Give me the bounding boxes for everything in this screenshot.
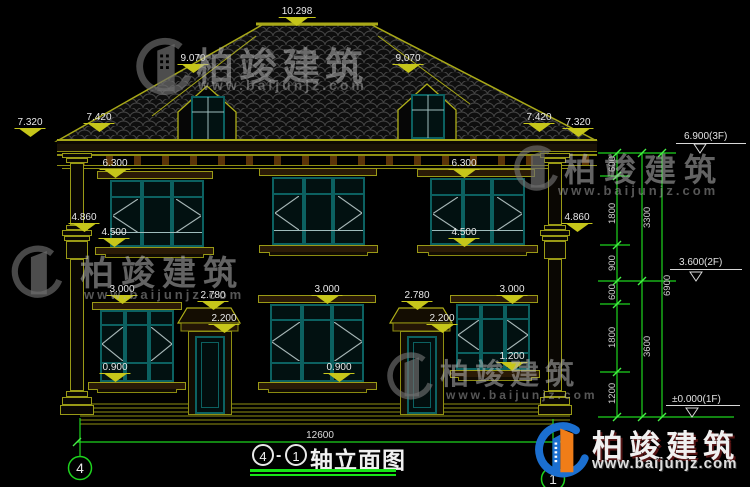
vdim-6900: 6900 — [662, 275, 673, 296]
dim-eave-outer-right: 7.320 — [562, 117, 593, 129]
company-logo-url: www.baijunjz.com — [592, 455, 737, 472]
level-2f: 3.600(2F) — [679, 257, 722, 268]
dim-overall-width: 12600 — [306, 430, 334, 441]
dim-cap-right: 4.860 — [561, 212, 592, 224]
dim-ridge-elevation: 10.298 — [279, 6, 316, 18]
dim-f2-head-right: 6.300 — [448, 158, 479, 170]
dim-slope-right: 9.070 — [392, 53, 423, 65]
vdim-900: 900 — [607, 255, 618, 271]
dim-f1-head-right: 3.000 — [496, 284, 527, 296]
vdim-3600: 3600 — [642, 336, 653, 357]
title-axis-circle-b: 1 — [285, 444, 307, 466]
dim-door-head-right: 2.200 — [426, 313, 457, 325]
dim-f1-sill-left: 0.900 — [99, 362, 130, 374]
dim-f2-sill-left: 4.500 — [98, 227, 129, 239]
elevation-drawing-canvas: 10.298 9.070 9.070 7.320 7.420 7.420 7.3… — [0, 0, 750, 487]
dim-f1-head-center: 3.000 — [311, 284, 342, 296]
dim-door-head-left: 2.200 — [208, 313, 239, 325]
watermark-url: www.baijunjz.com — [84, 287, 244, 302]
vdim-1800-top: 1800 — [607, 203, 618, 224]
green-dim-lines — [77, 153, 734, 467]
title-underline-2 — [250, 474, 396, 476]
axis-number-left: 4 — [76, 460, 84, 476]
watermark-glyph — [514, 140, 560, 200]
dim-f2-sill-right: 4.500 — [448, 227, 479, 239]
title-axis-circle-a: 4 — [252, 444, 274, 466]
vdim-1800-bot: 1800 — [607, 327, 618, 348]
company-logo-glyph — [534, 420, 590, 486]
dim-f2-head-left: 6.300 — [99, 158, 130, 170]
watermark-url: www.baijunjz.com — [446, 388, 598, 402]
watermark-url: www.baijunjz.com — [558, 183, 718, 198]
watermark-glyph — [386, 350, 436, 406]
level-3f: 6.900(3F) — [684, 131, 727, 142]
dim-eave-outer-left: 7.320 — [14, 117, 45, 129]
dim-eave-inner-right: 7.420 — [523, 112, 554, 124]
vdim-1200: 1200 — [607, 383, 618, 404]
watermark-url: www.baijunjz.com — [198, 77, 367, 93]
vdim-600-mid: 600 — [607, 284, 618, 300]
watermark-glyph — [136, 33, 194, 105]
dim-f1-sill-center: 0.900 — [323, 362, 354, 374]
watermark-glyph — [6, 243, 70, 305]
dim-cap-left: 4.860 — [68, 212, 99, 224]
title-dash: - — [276, 447, 281, 465]
level-1f: ±0.000(1F) — [672, 394, 721, 405]
watermark-brand: 柏竣建筑 — [440, 351, 580, 393]
dim-eave-inner-left: 7.420 — [83, 112, 114, 124]
title-underline — [250, 469, 396, 472]
vdim-3300: 3300 — [642, 207, 653, 228]
dim-porch-right: 2.780 — [401, 290, 432, 302]
